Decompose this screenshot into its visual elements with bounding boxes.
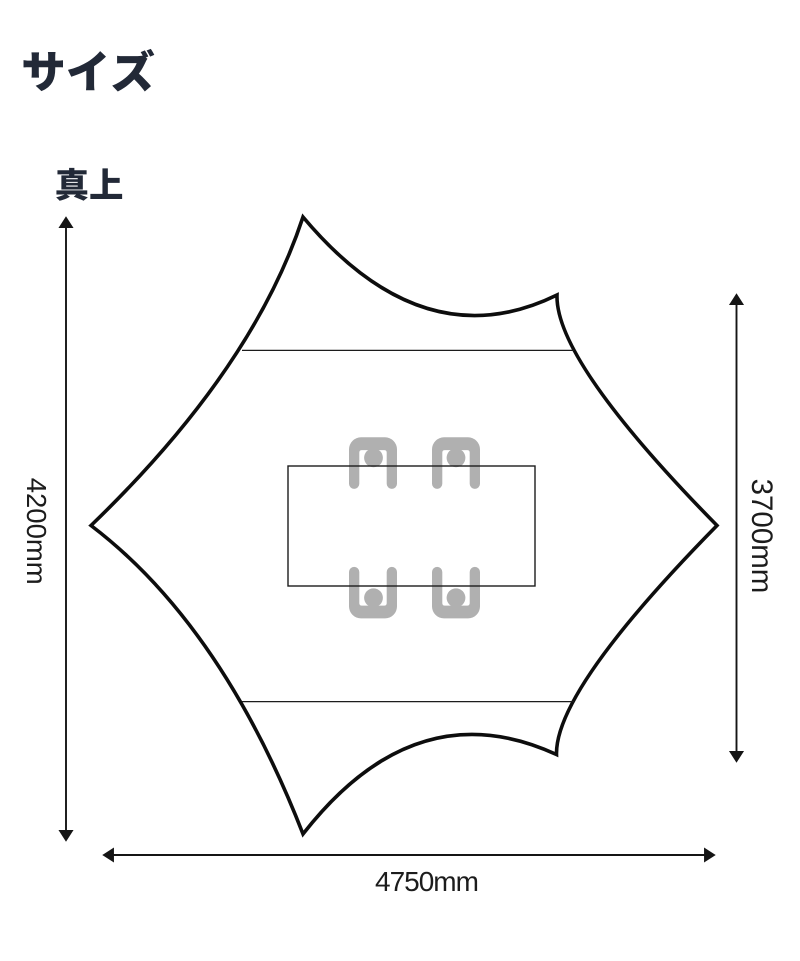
svg-text:4200mm: 4200mm [21,478,52,585]
svg-text:4750mm: 4750mm [375,866,478,897]
svg-text:3700mm: 3700mm [745,479,778,594]
